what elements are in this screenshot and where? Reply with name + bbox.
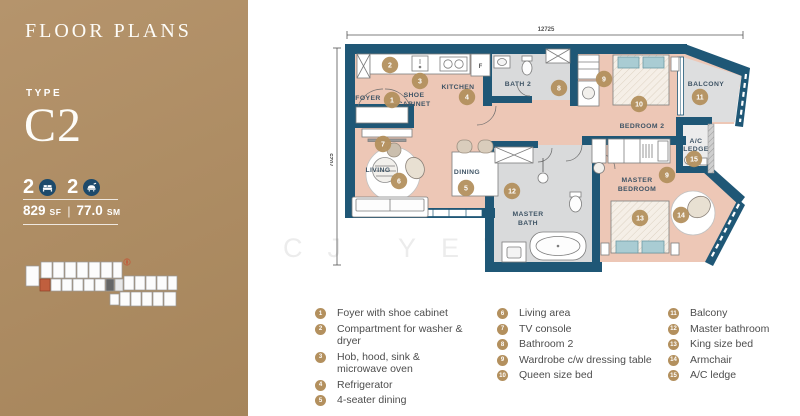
stool <box>594 163 605 174</box>
legend-label-3: Hob, hood, sink & microwave oven <box>337 351 465 376</box>
marker-9b: 9 <box>659 167 675 183</box>
bedside-table <box>671 243 679 255</box>
legend-label-9: Wardrobe c/w dressing table <box>519 354 652 367</box>
svg-text:3: 3 <box>418 79 422 86</box>
legend-num-10: 10 <box>497 370 508 381</box>
room-label-master-bedroom: MASTER <box>621 177 652 184</box>
legend-num-15: 15 <box>668 370 679 381</box>
legend-label-8: Bathroom 2 <box>519 338 573 351</box>
legend-num-4: 4 <box>315 380 326 391</box>
bathroom-count: 2 <box>67 176 78 199</box>
key-plan <box>24 256 180 320</box>
svg-text:2: 2 <box>388 63 392 70</box>
legend-num-9: 9 <box>497 355 508 366</box>
floor-plan-drawing: 12725 7025 <box>330 0 800 300</box>
marker-9a: 9 <box>596 71 612 87</box>
legend-num-8: 8 <box>497 339 508 350</box>
svg-text:15: 15 <box>690 157 698 164</box>
divider-line-bottom <box>23 224 118 225</box>
area-sm-value: 77.0 <box>77 203 103 218</box>
tv-console <box>362 129 412 137</box>
room-label-foyer: FOYER <box>355 95 380 102</box>
bedside-table <box>671 57 679 71</box>
legend-num-3: 3 <box>315 352 326 363</box>
legend-item-6: 6Living area <box>497 307 665 320</box>
room-label-ac-ledge: A/C <box>690 138 703 145</box>
info-panel: FLOOR PLANS TYPE C2 2 2 829 SF | 77.0 SM <box>0 0 248 416</box>
legend-item-1: 1Foyer with shoe cabinet <box>315 307 475 320</box>
legend-item-5: 54-seater dining <box>315 394 475 407</box>
area-separator: | <box>67 204 70 218</box>
pillow <box>616 241 638 253</box>
legend-label-5: 4-seater dining <box>337 394 406 407</box>
legend-column-1: 1Foyer with shoe cabinet 2Compartment fo… <box>315 307 475 410</box>
svg-text:9: 9 <box>602 77 606 84</box>
marker-5: 5 <box>458 180 474 196</box>
legend-label-14: Armchair <box>690 354 732 367</box>
dressing-table <box>592 139 606 163</box>
room-label-living: LIVING <box>365 167 390 174</box>
dining-chair <box>457 140 472 153</box>
legend-item-4: 4Refrigerator <box>315 379 475 392</box>
wardrobe-shelves <box>578 55 599 79</box>
unit-area: 829 SF | 77.0 SM <box>23 203 121 218</box>
marker-6: 6 <box>391 173 407 189</box>
legend-label-6: Living area <box>519 307 570 320</box>
marker-7: 7 <box>375 136 391 152</box>
legend-item-3: 3Hob, hood, sink & microwave oven <box>315 351 475 376</box>
unit-stats: 2 2 <box>23 176 106 199</box>
pillow <box>643 57 664 68</box>
legend-num-13: 13 <box>668 339 679 350</box>
area-sf-value: 829 <box>23 203 46 218</box>
legend-num-7: 7 <box>497 324 508 335</box>
svg-text:12: 12 <box>508 189 516 196</box>
marker-2: 2 <box>382 57 398 73</box>
legend-item-8: 8Bathroom 2 <box>497 338 665 351</box>
svg-text:6: 6 <box>397 179 401 186</box>
svg-text:9: 9 <box>665 173 669 180</box>
svg-text:BATH: BATH <box>518 220 538 227</box>
marker-8: 8 <box>551 80 567 96</box>
legend-label-2: Compartment for washer & dryer <box>337 323 465 348</box>
dining-chair <box>478 140 493 153</box>
marker-3: 3 <box>412 73 428 89</box>
svg-text:BEDROOM: BEDROOM <box>618 186 656 193</box>
legend-num-5: 5 <box>315 395 326 406</box>
room-label-dining: DINING <box>454 169 480 176</box>
pillow <box>618 57 639 68</box>
legend-label-11: Balcony <box>690 307 727 320</box>
marker-1: 1 <box>384 92 400 108</box>
shower-icon <box>83 179 100 196</box>
legend-label-10: Queen size bed <box>519 369 593 382</box>
bed-icon <box>39 179 56 196</box>
bedroom-count: 2 <box>23 176 34 199</box>
legend-item-2: 2Compartment for washer & dryer <box>315 323 475 348</box>
marker-11: 11 <box>692 89 708 105</box>
legend-num-14: 14 <box>668 355 679 366</box>
svg-text:13: 13 <box>636 216 644 223</box>
floor-plan-page: { "colors": { "panel_tan_light": "#b5946… <box>0 0 800 416</box>
marker-15: 15 <box>686 151 702 167</box>
dimension-width: 12725 <box>538 27 555 33</box>
dimension-height: 7025 <box>330 153 335 167</box>
toilet <box>570 196 582 212</box>
bath2-toilet-tank <box>522 56 532 61</box>
room-label-bedroom2: BEDROOM 2 <box>620 123 665 130</box>
room-label-balcony: BALCONY <box>688 81 724 88</box>
room-label-bath2: BATH 2 <box>505 81 531 88</box>
legend-num-1: 1 <box>315 308 326 319</box>
legend-num-11: 11 <box>668 308 679 319</box>
room-label-shoe-cabinet: SHOE <box>404 92 425 99</box>
legend-item-7: 7TV console <box>497 323 665 336</box>
unit-type: C2 <box>24 98 82 153</box>
legend-item-14: 14Armchair <box>668 354 783 367</box>
legend-item-12: 12Master bathroom <box>668 323 783 336</box>
legend-column-2: 6Living area 7TV console 8Bathroom 2 9Wa… <box>497 307 665 385</box>
pillow <box>642 241 664 253</box>
bedside-table <box>601 243 609 255</box>
svg-text:10: 10 <box>635 102 643 109</box>
legend-label-4: Refrigerator <box>337 379 392 392</box>
legend-label-15: A/C ledge <box>690 369 736 382</box>
divider-line-top <box>23 199 118 200</box>
legend-num-12: 12 <box>668 324 679 335</box>
svg-text:14: 14 <box>677 213 685 220</box>
marker-10: 10 <box>631 96 647 112</box>
area-sf-unit: SF <box>50 207 62 217</box>
legend-item-9: 9Wardrobe c/w dressing table <box>497 354 665 367</box>
page-title: FLOOR PLANS <box>25 20 192 43</box>
svg-text:11: 11 <box>696 95 704 102</box>
room-label-master-bath: MASTER <box>512 211 543 218</box>
svg-text:CABINET: CABINET <box>397 101 430 108</box>
area-sm-unit: SM <box>107 207 121 217</box>
svg-text:4: 4 <box>465 95 469 102</box>
svg-text:1: 1 <box>390 98 394 105</box>
compass-icon <box>124 258 130 266</box>
fridge-label: F <box>479 64 483 70</box>
legend-item-13: 13King size bed <box>668 338 783 351</box>
legend-item-10: 10Queen size bed <box>497 369 665 382</box>
marker-4: 4 <box>459 89 475 105</box>
svg-text:8: 8 <box>557 86 561 93</box>
legend-num-6: 6 <box>497 308 508 319</box>
marker-12: 12 <box>504 183 520 199</box>
legend-item-15: 15A/C ledge <box>668 369 783 382</box>
marker-13: 13 <box>632 210 648 226</box>
basin <box>538 173 548 183</box>
legend-column-3: 11Balcony 12Master bathroom 13King size … <box>668 307 783 385</box>
legend-num-2: 2 <box>315 324 326 335</box>
marker-14: 14 <box>673 207 689 223</box>
svg-text:7: 7 <box>381 142 385 149</box>
svg-text:5: 5 <box>464 186 468 193</box>
legend-label-7: TV console <box>519 323 572 336</box>
legend-label-1: Foyer with shoe cabinet <box>337 307 448 320</box>
legend-label-12: Master bathroom <box>690 323 769 336</box>
legend-item-11: 11Balcony <box>668 307 783 320</box>
legend-label-13: King size bed <box>690 338 753 351</box>
shoe-cabinet <box>356 107 408 123</box>
highlighted-unit <box>40 279 50 291</box>
